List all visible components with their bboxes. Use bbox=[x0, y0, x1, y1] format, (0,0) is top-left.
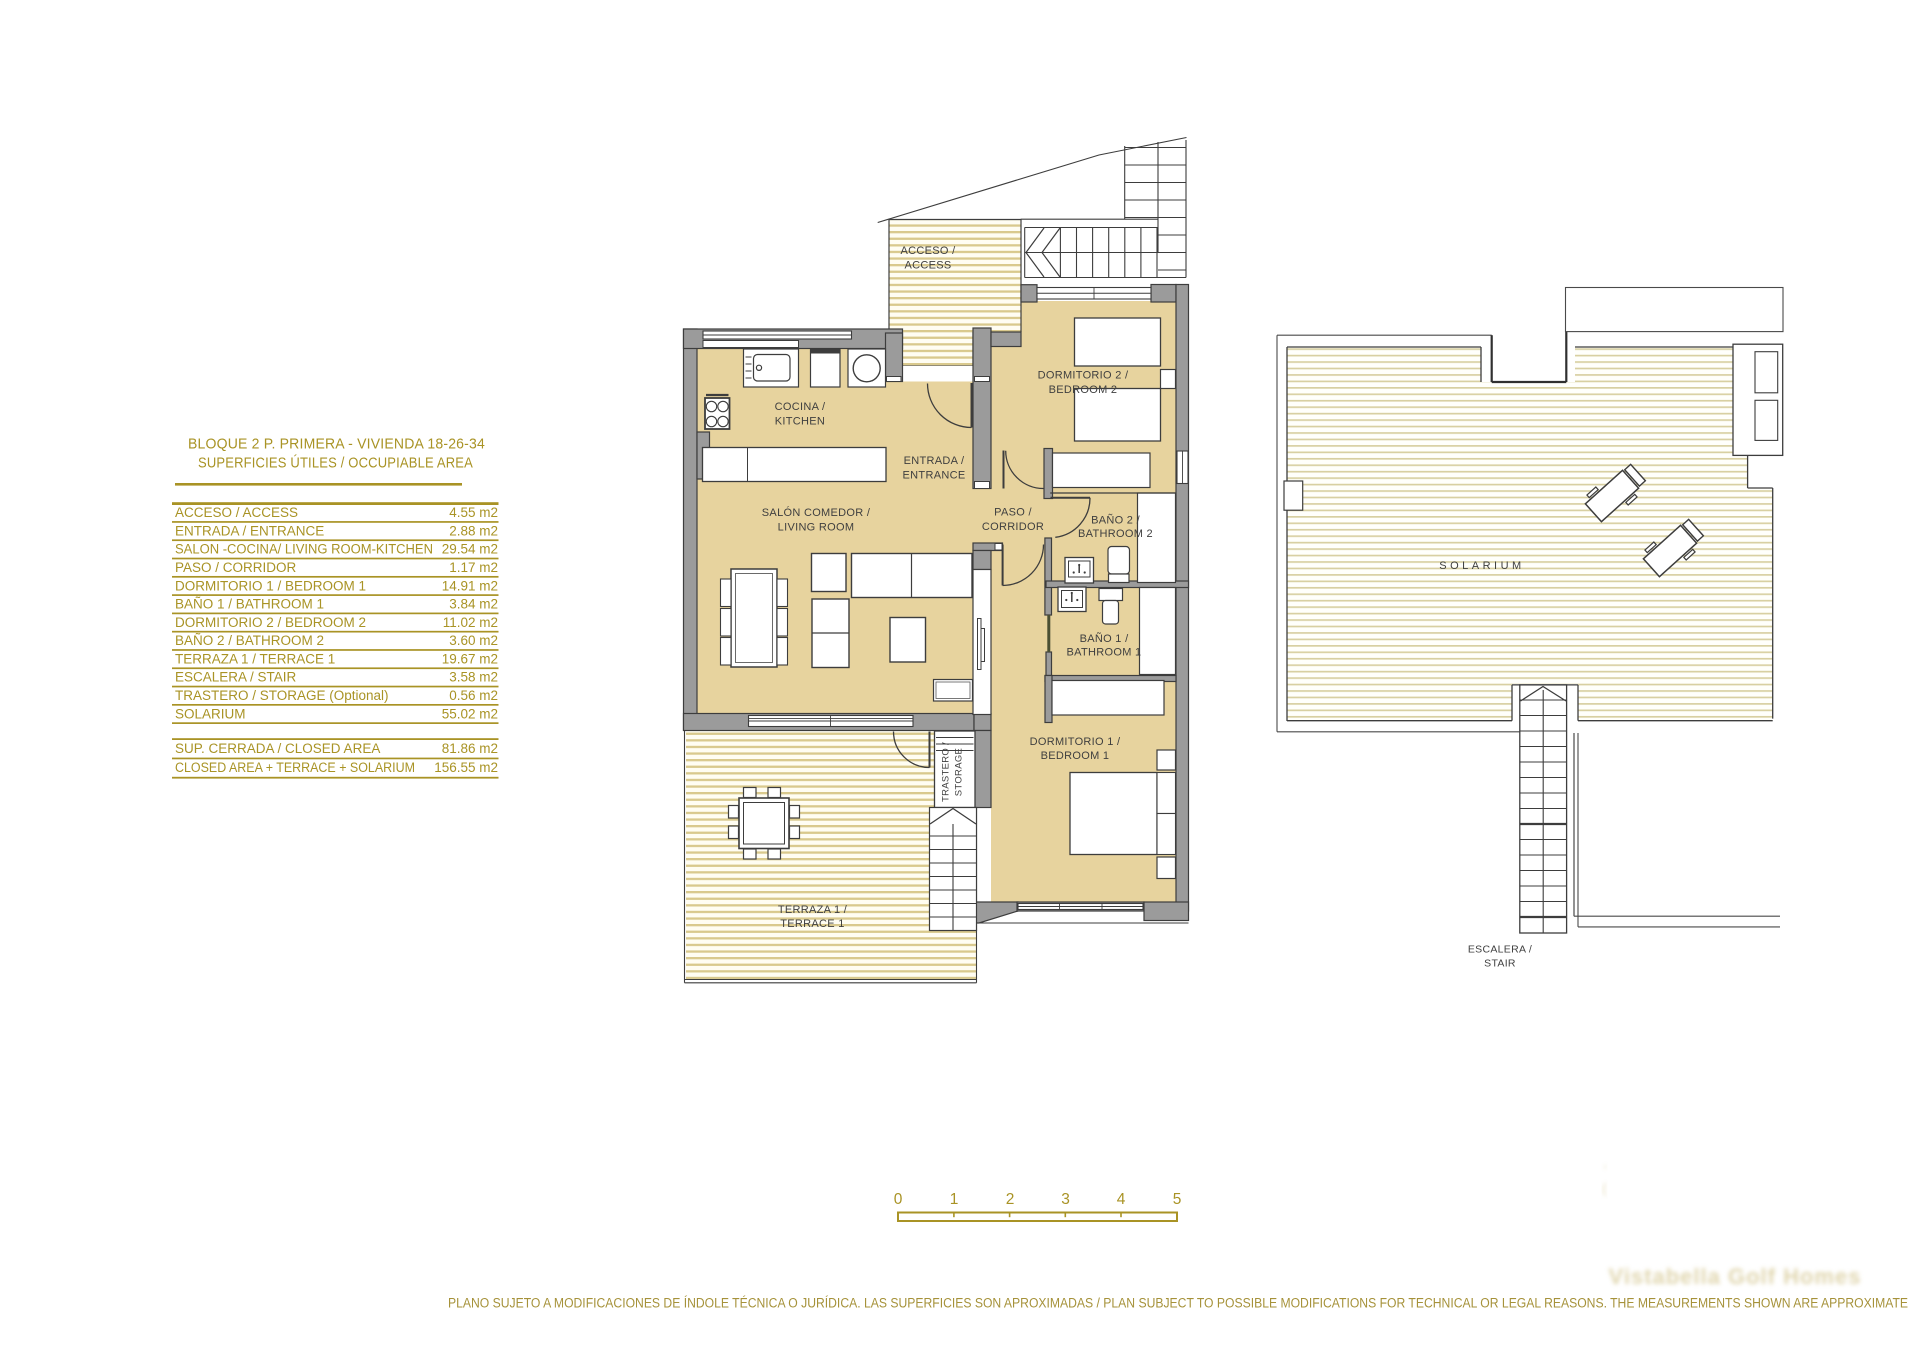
svg-text:SALÓN COMEDOR /: SALÓN COMEDOR / bbox=[762, 506, 871, 519]
svg-text:SOLARIUM: SOLARIUM bbox=[1439, 560, 1524, 572]
svg-text:3.84 m2: 3.84 m2 bbox=[449, 597, 498, 612]
svg-text:': ' bbox=[1604, 1162, 1607, 1178]
svg-text:ESCALERA / STAIR: ESCALERA / STAIR bbox=[175, 670, 297, 685]
svg-text:0.56 m2: 0.56 m2 bbox=[449, 688, 498, 703]
svg-text:29.54 m2: 29.54 m2 bbox=[442, 542, 498, 557]
svg-text:(: ( bbox=[1602, 1180, 1607, 1196]
svg-text:SUP. CERRADA / CLOSED AREA: SUP. CERRADA / CLOSED AREA bbox=[175, 741, 380, 756]
svg-text:CORRIDOR: CORRIDOR bbox=[982, 521, 1044, 533]
svg-text:TERRAZA 1 / TERRACE 1: TERRAZA 1 / TERRACE 1 bbox=[175, 651, 335, 666]
svg-text:TRASTERO /: TRASTERO / bbox=[941, 742, 952, 802]
svg-text:BAÑO 1 /: BAÑO 1 / bbox=[1080, 632, 1130, 645]
svg-text:BATHROOM 2: BATHROOM 2 bbox=[1078, 528, 1153, 540]
svg-text:DORMITORIO 2 / BEDROOM 2: DORMITORIO 2 / BEDROOM 2 bbox=[175, 615, 366, 630]
svg-text:55.02 m2: 55.02 m2 bbox=[442, 706, 498, 721]
svg-text:1.17 m2: 1.17 m2 bbox=[449, 560, 498, 575]
svg-text:BAÑO 1 / BATHROOM 1: BAÑO 1 / BATHROOM 1 bbox=[175, 597, 324, 612]
svg-text:PASO /: PASO / bbox=[994, 507, 1032, 519]
svg-text:PASO / CORRIDOR: PASO / CORRIDOR bbox=[175, 560, 297, 575]
svg-text:4: 4 bbox=[1117, 1191, 1126, 1208]
svg-text:TERRACE 1: TERRACE 1 bbox=[780, 918, 844, 930]
svg-text:81.86 m2: 81.86 m2 bbox=[442, 741, 498, 756]
svg-text:STORAGE: STORAGE bbox=[954, 748, 965, 796]
svg-text:DORMITORIO 2 /: DORMITORIO 2 / bbox=[1038, 370, 1129, 382]
svg-text:156.55 m2: 156.55 m2 bbox=[434, 760, 498, 775]
svg-text:SUPERFICIES ÚTILES / OCCUPIABL: SUPERFICIES ÚTILES / OCCUPIABLE AREA bbox=[198, 455, 473, 472]
svg-text:ESCALERA /: ESCALERA / bbox=[1468, 944, 1532, 956]
svg-text:ACCESS: ACCESS bbox=[904, 260, 951, 272]
svg-text:COCINA /: COCINA / bbox=[775, 401, 826, 413]
svg-text:KITCHEN: KITCHEN bbox=[775, 416, 825, 428]
svg-text:TERRAZA 1 /: TERRAZA 1 / bbox=[778, 904, 848, 916]
svg-text:0: 0 bbox=[894, 1191, 903, 1208]
svg-text:SALON -COCINA/ LIVING ROOM-KIT: SALON -COCINA/ LIVING ROOM-KITCHEN bbox=[175, 542, 433, 557]
svg-text:3: 3 bbox=[1061, 1191, 1070, 1208]
svg-text:BATHROOM 1: BATHROOM 1 bbox=[1067, 647, 1142, 659]
svg-text:CLOSED AREA + TERRACE + SOLARI: CLOSED AREA + TERRACE + SOLARIUM bbox=[175, 760, 415, 775]
svg-text:BAÑO 2 / BATHROOM 2: BAÑO 2 / BATHROOM 2 bbox=[175, 633, 324, 648]
svg-text:4.55 m2: 4.55 m2 bbox=[449, 505, 498, 520]
svg-text:DORMITORIO 1 / BEDROOM 1: DORMITORIO 1 / BEDROOM 1 bbox=[175, 578, 366, 593]
svg-text:BEDROOM 1: BEDROOM 1 bbox=[1041, 750, 1110, 762]
svg-text:Vistabella Golf Homes: Vistabella Golf Homes bbox=[1609, 1264, 1862, 1289]
svg-text:ACCESO /: ACCESO / bbox=[901, 245, 957, 257]
svg-text:14.91 m2: 14.91 m2 bbox=[442, 578, 498, 593]
svg-text:BLOQUE 2 P. PRIMERA - VIVIEND: BLOQUE 2 P. PRIMERA - VIVIENDA 18-26-34 bbox=[188, 436, 485, 453]
svg-text:BAÑO 2 /: BAÑO 2 / bbox=[1091, 514, 1141, 527]
svg-text:3.60 m2: 3.60 m2 bbox=[449, 633, 498, 648]
svg-text:LIVING ROOM: LIVING ROOM bbox=[778, 522, 855, 534]
svg-text:BEDROOM 2: BEDROOM 2 bbox=[1049, 384, 1118, 396]
svg-text:STAIR: STAIR bbox=[1484, 958, 1516, 970]
svg-text:5: 5 bbox=[1173, 1191, 1182, 1208]
svg-text:3.58 m2: 3.58 m2 bbox=[449, 670, 498, 685]
svg-text:SOLARIUM: SOLARIUM bbox=[175, 706, 246, 721]
svg-text:PLANO SUJETO A MODIFICACIONES: PLANO SUJETO A MODIFICACIONES DE ÍNDOLE … bbox=[448, 1296, 1908, 1311]
svg-text:ENTRANCE: ENTRANCE bbox=[903, 470, 966, 482]
svg-text:TRASTERO / STORAGE (Optional): TRASTERO / STORAGE (Optional) bbox=[175, 688, 389, 703]
svg-text:11.02 m2: 11.02 m2 bbox=[443, 615, 498, 630]
svg-text:DORMITORIO 1 /: DORMITORIO 1 / bbox=[1030, 736, 1121, 748]
svg-text:ACCESO / ACCESS: ACCESO / ACCESS bbox=[175, 505, 298, 520]
svg-text:ENTRADA /: ENTRADA / bbox=[904, 455, 965, 467]
svg-text:2.88 m2: 2.88 m2 bbox=[449, 523, 498, 538]
svg-text:1: 1 bbox=[950, 1191, 959, 1208]
svg-text:19.67 m2: 19.67 m2 bbox=[442, 651, 498, 666]
svg-text:ENTRADA / ENTRANCE: ENTRADA / ENTRANCE bbox=[175, 523, 324, 538]
svg-text:2: 2 bbox=[1006, 1191, 1015, 1208]
